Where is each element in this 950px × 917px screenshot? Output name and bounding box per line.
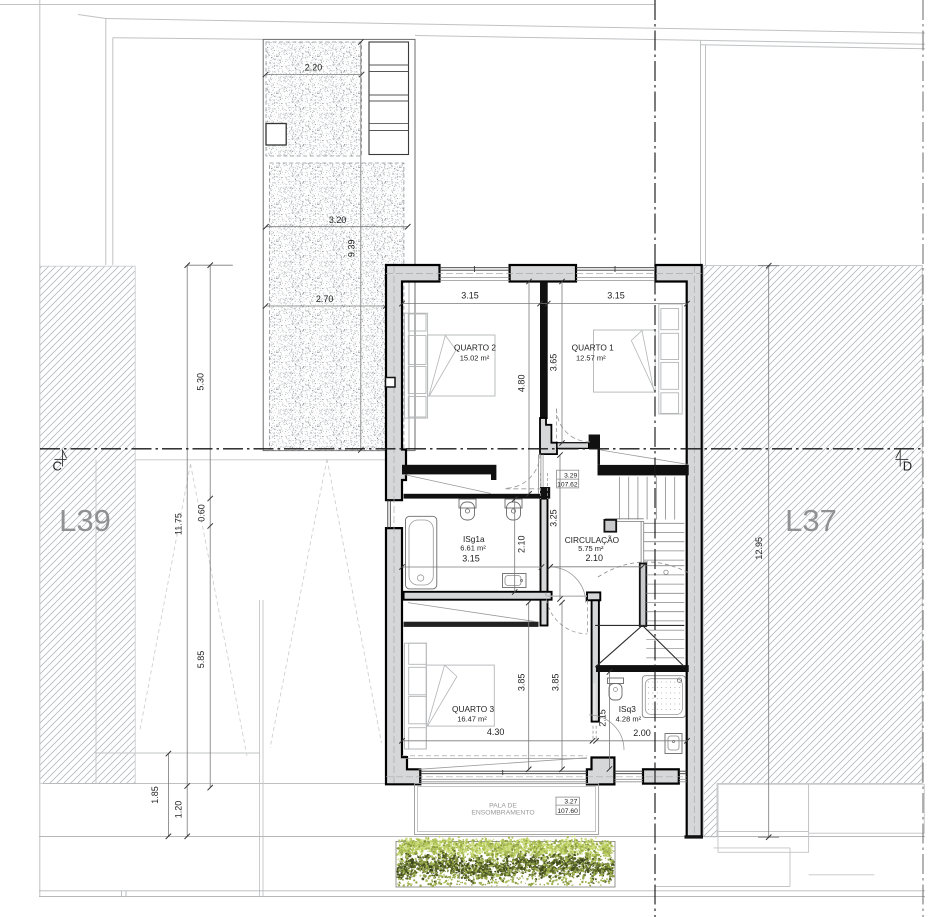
svg-text:9.39: 9.39 (347, 240, 357, 258)
svg-text:2.00: 2.00 (633, 728, 651, 738)
svg-text:1.20: 1.20 (174, 801, 184, 819)
svg-text:3.29: 3.29 (564, 472, 577, 479)
svg-text:QUARTO 2: QUARTO 2 (454, 342, 496, 352)
svg-text:3.15: 3.15 (462, 554, 480, 564)
svg-text:3.25: 3.25 (549, 509, 559, 527)
svg-text:ENSOMBRAMENTO: ENSOMBRAMENTO (471, 809, 534, 816)
svg-text:3.85: 3.85 (517, 674, 527, 692)
svg-text:15.02 m²: 15.02 m² (460, 353, 490, 362)
svg-text:16.47 m²: 16.47 m² (457, 715, 487, 724)
svg-text:3.20: 3.20 (329, 215, 347, 225)
svg-text:0.60: 0.60 (197, 504, 207, 522)
svg-text:12.57 m²: 12.57 m² (576, 353, 606, 362)
svg-text:3.85: 3.85 (550, 674, 560, 692)
svg-text:2.10: 2.10 (586, 553, 604, 563)
svg-text:5.75 m²: 5.75 m² (578, 544, 604, 553)
svg-text:2.70: 2.70 (316, 294, 334, 304)
svg-text:12.95: 12.95 (754, 537, 764, 560)
svg-text:QUARTO 1: QUARTO 1 (572, 342, 614, 352)
svg-text:107.62: 107.62 (557, 481, 578, 488)
svg-text:QUARTO 3: QUARTO 3 (452, 704, 494, 714)
svg-text:2.20: 2.20 (305, 63, 323, 73)
svg-text:1.85: 1.85 (150, 786, 160, 804)
svg-text:4.30: 4.30 (487, 727, 505, 737)
svg-text:3.65: 3.65 (549, 354, 559, 372)
svg-text:3.27: 3.27 (564, 798, 577, 805)
svg-text:4.28 m²: 4.28 m² (616, 715, 642, 724)
svg-text:6.61 m²: 6.61 m² (460, 544, 486, 553)
svg-text:5.85: 5.85 (196, 651, 206, 669)
svg-text:11.75: 11.75 (174, 513, 184, 535)
svg-text:4.80: 4.80 (516, 375, 526, 393)
svg-text:107.60: 107.60 (557, 808, 578, 815)
svg-text:3.15: 3.15 (607, 291, 625, 301)
svg-text:2.10: 2.10 (517, 535, 527, 553)
svg-text:ISq3: ISq3 (619, 704, 636, 714)
svg-text:2.15: 2.15 (598, 709, 608, 727)
svg-text:5.30: 5.30 (196, 373, 206, 391)
svg-text:ISg1a: ISg1a (463, 534, 485, 544)
svg-text:3.15: 3.15 (461, 291, 479, 301)
